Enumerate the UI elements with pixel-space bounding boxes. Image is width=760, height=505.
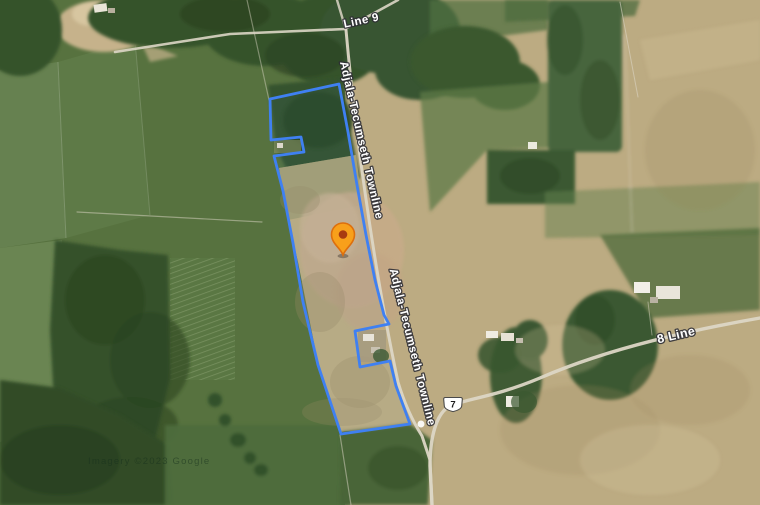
- route-7-shield: 7: [444, 398, 463, 412]
- road-dot: [418, 421, 425, 428]
- pin-center-dot: [339, 230, 348, 239]
- route-7-shield-number: 7: [450, 399, 455, 410]
- satellite-imagery: Line 9 Adjala-Tecumseth Townline Adjala-…: [0, 0, 760, 505]
- imagery-watermark: Imagery ©2023 Google: [88, 456, 210, 467]
- map-canvas[interactable]: Line 9 Adjala-Tecumseth Townline Adjala-…: [0, 0, 760, 505]
